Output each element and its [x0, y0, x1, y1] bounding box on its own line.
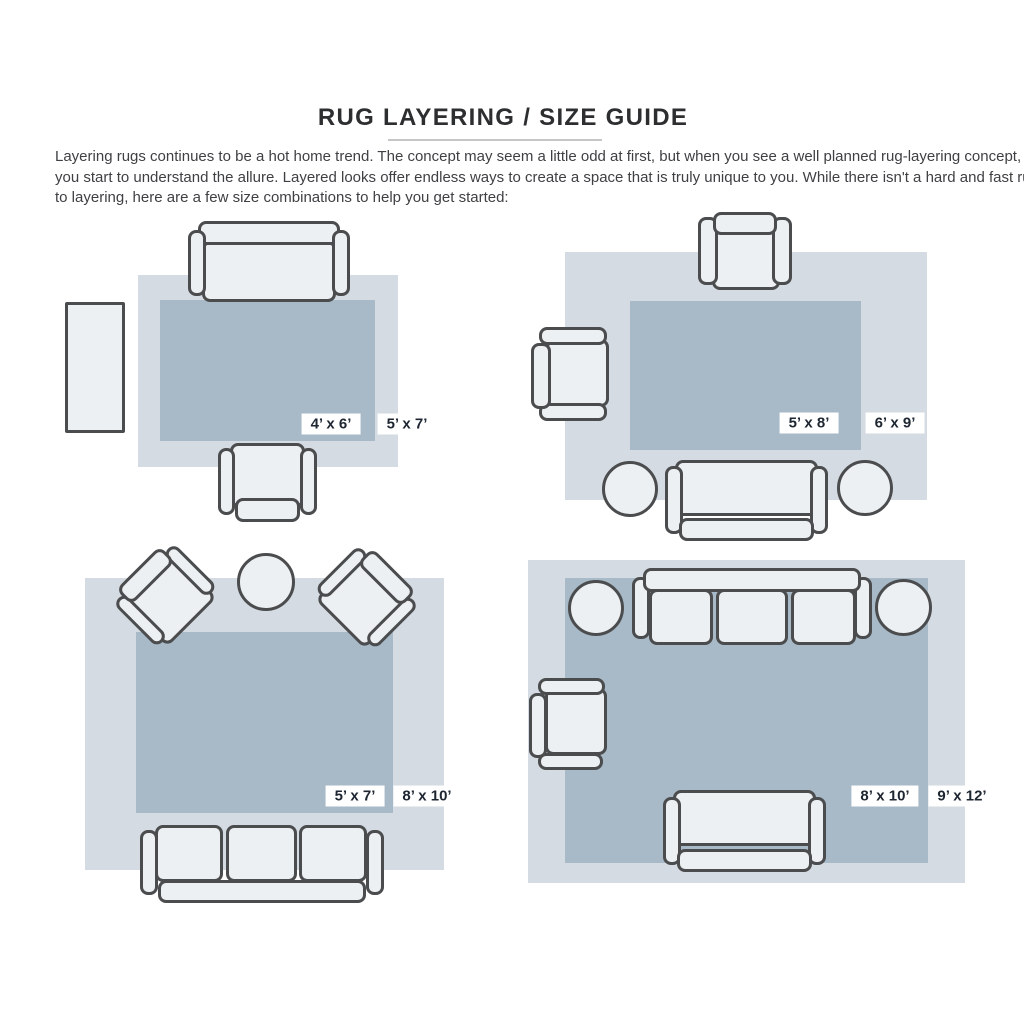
armchair-arm-top — [538, 678, 605, 695]
armchair-facing-right — [529, 678, 609, 772]
rug-size-guide-infographic: RUG LAYERING / SIZE GUIDE Layering rugs … — [0, 0, 1024, 1024]
sofa-back — [643, 568, 861, 592]
inner-rug-size-label: 8’ x 10’ — [851, 786, 918, 807]
sofa-cushion-middle — [716, 589, 788, 645]
layout-bottom-right: 8’ x 10’ 9’ x 12’ — [0, 0, 1024, 1024]
ottoman-left — [568, 580, 624, 636]
loveseat-back — [677, 849, 812, 872]
sofa-cushion-right — [791, 589, 856, 645]
armchair-arm-bottom — [538, 753, 603, 770]
outer-rug-size-label: 9’ x 12’ — [928, 786, 995, 807]
armchair-back — [529, 693, 547, 758]
loveseat-seat — [673, 790, 816, 846]
loveseat-facing-up — [663, 790, 826, 873]
sofa-cushion-left — [649, 589, 713, 645]
ottoman-right — [875, 579, 932, 636]
sofa-facing-down — [632, 568, 872, 647]
armchair-seat — [545, 688, 607, 755]
